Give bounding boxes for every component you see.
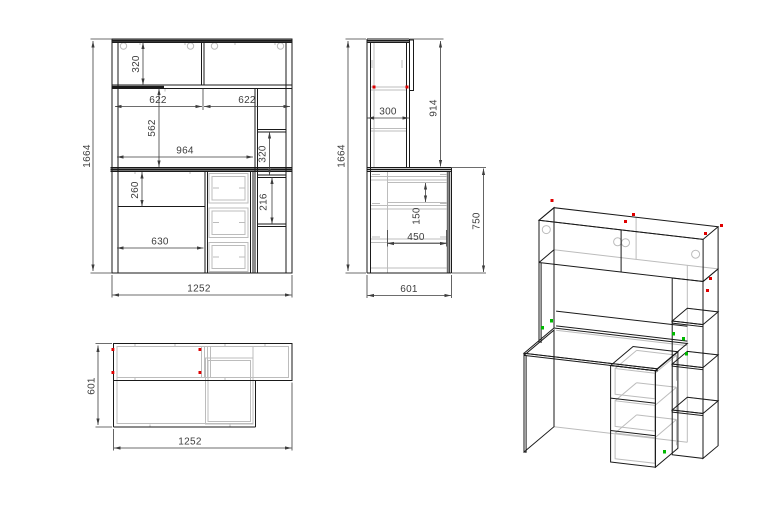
green-marker: [682, 337, 685, 341]
dimension-arrow-icon: [113, 293, 120, 296]
green-marker: [663, 450, 666, 454]
dim-front-hutch-height: 320: [131, 43, 145, 86]
dim-side-overall-depth: 601: [367, 275, 452, 298]
top-view-gray-details: [117, 344, 290, 427]
dim-top-overall-depth: 601: [87, 344, 113, 428]
iso-desk-left-panel-edge: [524, 355, 526, 452]
dimension-arrow-icon: [91, 41, 94, 48]
dimension-value: 260: [130, 181, 141, 199]
dimension-arrow-icon: [196, 105, 203, 108]
dimension-arrow-icon: [140, 200, 143, 207]
hinge-icon: [692, 250, 700, 258]
red-marker: [199, 371, 202, 374]
dim-front-under-desk-height: 260: [130, 172, 144, 207]
iso-edge: [637, 415, 677, 420]
dimension-arrow-icon: [268, 132, 271, 139]
red-marker: [720, 224, 723, 227]
top-outline: [114, 344, 293, 428]
dimension-value: 622: [238, 95, 256, 106]
dimension-arrow-icon: [157, 161, 160, 168]
dimension-arrow-icon: [424, 183, 427, 190]
green-marker: [541, 326, 544, 330]
dim-side-drawer-depth: 450: [388, 230, 447, 247]
dim-front-right-door-width: 622: [204, 95, 290, 108]
iso-hidden-edge: [556, 330, 687, 345]
dimension-value: 1252: [187, 284, 211, 295]
dim-front-shelf-gap-lower: 216: [259, 178, 274, 225]
dimension-value: 1252: [178, 437, 202, 448]
dimension-arrow-icon: [96, 419, 99, 426]
hinge-icon: [542, 226, 550, 234]
dimension-value: 750: [472, 212, 483, 230]
dimension-value: 1664: [82, 144, 93, 168]
dimension-arrow-icon: [114, 446, 121, 449]
dimension-arrow-icon: [368, 294, 375, 297]
dimension-arrow-icon: [270, 178, 273, 185]
dimension-arrow-icon: [96, 346, 99, 353]
dim-side-above-desk-height: 914: [410, 39, 444, 167]
dim-front-overall-width: 1252: [112, 275, 292, 298]
dimension-arrow-icon: [445, 294, 452, 297]
red-marker: [373, 86, 376, 89]
red-marker: [199, 348, 202, 351]
dimension-arrow-icon: [346, 41, 349, 48]
dimension-value: 601: [87, 377, 98, 395]
iso-edge: [615, 383, 637, 401]
red-marker: [632, 213, 635, 216]
iso-edge: [655, 420, 677, 438]
red-marker: [624, 220, 627, 223]
red-marker: [706, 289, 709, 292]
dimension-value: 216: [259, 193, 270, 211]
green-marker: [550, 319, 553, 323]
iso-back-rail: [556, 326, 687, 341]
dimension-arrow-icon: [285, 293, 292, 296]
dim-side-overall-height: 1664: [337, 39, 367, 273]
dimensions: 1664320622622562964260630320216125216643…: [82, 39, 486, 451]
dimension-value: 300: [379, 107, 397, 118]
iso-hutch-left-side: [539, 208, 554, 263]
iso-edge: [615, 415, 637, 433]
technical-drawing: 1664320622622562964260630320216125216643…: [0, 0, 777, 514]
iso-edge: [655, 387, 677, 405]
red-marker: [709, 277, 712, 280]
dim-side-drawer-box-height: 150: [412, 183, 428, 225]
cam-fitting-icon: [187, 43, 193, 49]
dimension-value: 450: [407, 232, 425, 243]
dimension-value: 630: [151, 237, 169, 248]
red-marker: [112, 371, 115, 374]
dimension-arrow-icon: [247, 155, 254, 158]
iso-desk-left-panel: [524, 330, 554, 452]
top-view: [112, 344, 293, 428]
dimension-arrow-icon: [403, 116, 410, 119]
dimension-arrow-icon: [141, 79, 144, 86]
green-marker: [672, 332, 675, 336]
dimension-value: 1664: [337, 144, 348, 168]
hinge-icon: [614, 238, 622, 246]
cam-fitting-icon: [277, 43, 283, 49]
blueprint-page: 1664320622622562964260630320216125216643…: [0, 0, 777, 514]
dimension-value: 320: [258, 145, 269, 163]
dimension-arrow-icon: [346, 265, 349, 272]
dimension-arrow-icon: [439, 41, 442, 48]
iso-back-rail: [556, 311, 687, 326]
dimension-arrow-icon: [157, 89, 160, 96]
dimension-arrow-icon: [285, 446, 292, 449]
red-marker: [112, 348, 115, 351]
dimension-value: 914: [429, 99, 440, 117]
dimension-arrow-icon: [424, 196, 427, 203]
dim-front-overall-height: 1664: [82, 39, 112, 273]
iso-shelf-column-side: [703, 269, 718, 459]
cam-fitting-icon: [120, 43, 126, 49]
dimension-arrow-icon: [141, 43, 144, 50]
dimension-arrow-icon: [197, 246, 204, 249]
green-marker: [685, 352, 688, 356]
dimension-arrow-icon: [482, 169, 485, 176]
dim-front-worktop-opening-width: 964: [117, 146, 253, 159]
dimension-arrow-icon: [284, 105, 291, 108]
dim-top-overall-width: 1252: [114, 383, 293, 451]
dimension-arrow-icon: [270, 218, 273, 225]
dim-side-desk-height: 750: [452, 168, 486, 274]
dimension-value: 601: [400, 284, 418, 295]
dimension-value: 622: [149, 95, 167, 106]
dimension-value: 150: [412, 207, 423, 225]
dim-front-kneehole-width: 630: [117, 237, 204, 250]
dimension-arrow-icon: [439, 160, 442, 167]
dimension-value: 320: [131, 55, 142, 73]
dimension-value: 562: [147, 119, 158, 137]
cam-fitting-icon: [211, 43, 217, 49]
dimension-value: 964: [176, 146, 194, 157]
isometric-view: [524, 199, 723, 467]
iso-drawer-unit-side: [655, 352, 678, 468]
iso-hutch-top: [539, 208, 718, 240]
dimension-arrow-icon: [91, 265, 94, 272]
red-marker: [551, 199, 554, 202]
red-marker: [406, 86, 409, 89]
dimension-arrow-icon: [482, 266, 485, 273]
iso-hidden-edge: [554, 427, 687, 443]
dimension-arrow-icon: [140, 172, 143, 179]
hinge-icon: [622, 239, 630, 247]
red-marker: [704, 232, 707, 235]
iso-edge: [637, 383, 677, 388]
dimension-arrow-icon: [204, 105, 211, 108]
